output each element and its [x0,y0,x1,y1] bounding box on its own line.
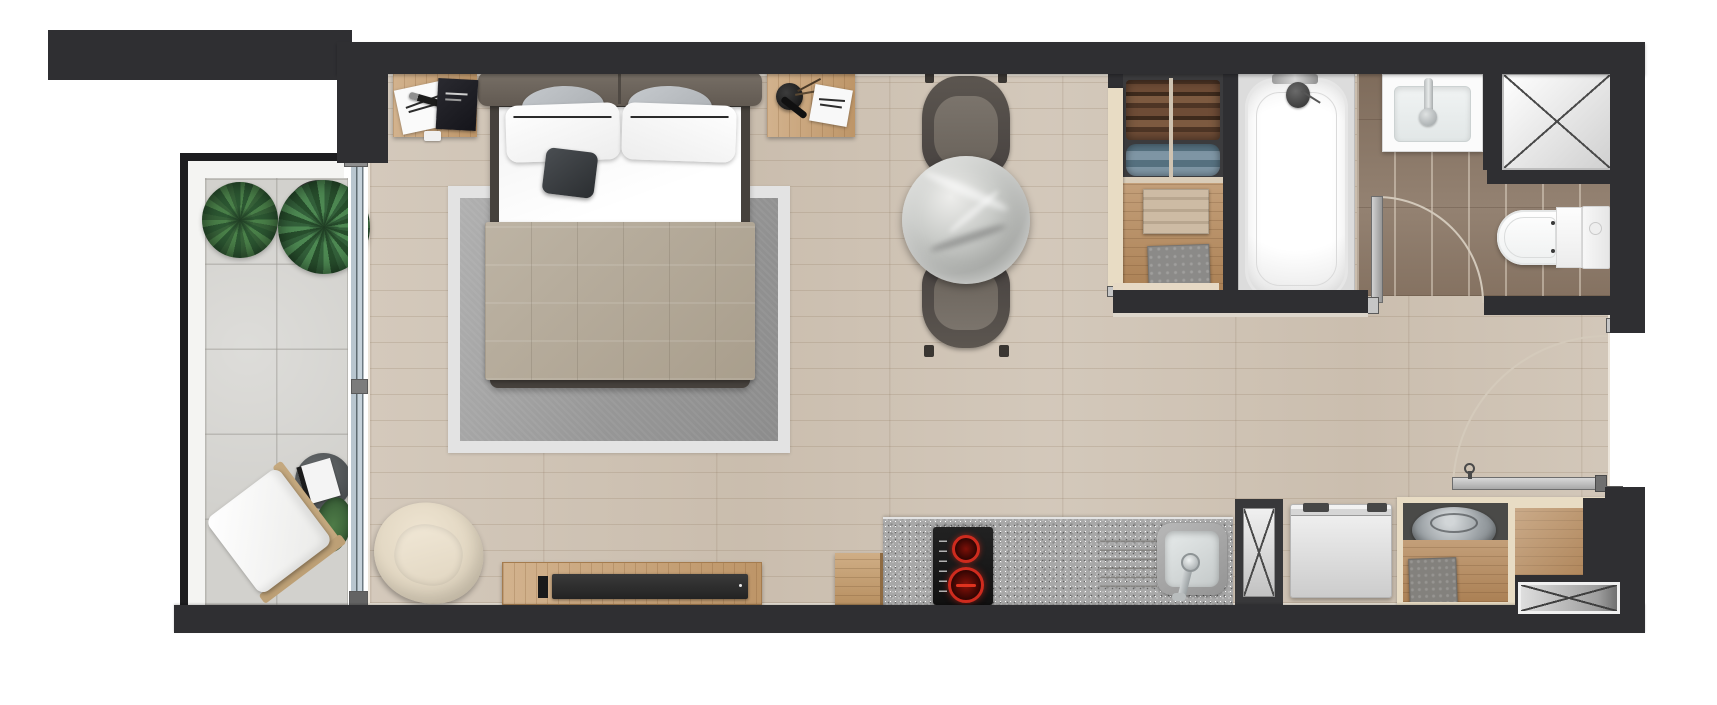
washer-hinge [1303,503,1329,512]
book-title-marks [445,98,461,100]
book-title-marks [446,92,468,95]
magazine-scribble [819,98,845,101]
toilet-flush-button [1589,222,1602,235]
hanging-clothes-blue [1126,144,1220,176]
exterior-wall-top-bump [48,30,352,80]
plant-center [226,206,254,234]
duct-shaft-x-icon [1502,73,1612,170]
drainer-grooves [1100,539,1157,587]
washing-machine [1290,504,1392,598]
headboard-split [618,74,621,104]
wall-sink-shaft-divider [1483,74,1502,170]
wood-stool [835,553,883,605]
chair-leg [924,345,934,357]
wall-toilet-south [1484,296,1645,315]
closet-partition-left [1108,88,1123,287]
dark-cushion [541,147,598,199]
duct-shaft-x-small-icon [1518,582,1620,614]
toilet-hinge-dot [1551,249,1555,253]
wall-bedroom-left-block [337,74,388,163]
burner-slit [956,584,976,587]
cabinet-left-interior [1403,503,1508,602]
balcony-frame-left [180,153,188,605]
remote [424,131,441,141]
tub-inner-line [1256,92,1337,286]
magazine [809,84,853,127]
entry-door-handle-stem [1468,471,1472,479]
white-pillow [621,102,737,163]
hob-burner [948,567,984,603]
sink-faucet-knob [1181,553,1200,572]
bathroom-door-leaf [1371,196,1383,303]
closet-right-wall [1223,74,1238,300]
washer-hinge [1367,503,1387,512]
marble-dining-table [902,156,1030,284]
hob-burner [952,535,980,563]
duct-shaft-x-icon [1243,508,1275,597]
basket-rim [1430,513,1478,533]
tv-power-led [739,584,742,587]
balcony-frame-top [180,153,344,161]
wall-south-light-edge [1113,313,1368,317]
tv-soundbar [552,574,748,599]
sink-drain-foot [1172,593,1186,601]
book [436,78,479,131]
basin-faucet-knob [1419,108,1437,126]
toilet-body [1556,207,1582,268]
pillow-piping [631,116,729,118]
magazine-scribble [820,103,842,108]
exterior-wall-top [337,42,1645,74]
bed-blanket [485,222,755,380]
folded-towel-gray [1408,557,1458,602]
pillow-piping [513,116,611,118]
closet-bottom-trim [1113,283,1219,290]
balcony-parapet-band-top [188,161,344,178]
toilet-hinge-dot [1551,221,1555,225]
hanging-clothes-brown [1126,80,1220,140]
marble-vein [929,222,1008,254]
floor-plan [0,0,1717,705]
exterior-wall-bottom [174,605,1645,633]
folded-towels-beige [1143,189,1209,234]
closet-rail [1169,78,1173,178]
wall-under-shaft [1487,170,1613,184]
plant-center [308,212,340,244]
exterior-wall-right-upper [1610,74,1645,333]
induction-hob [933,527,993,605]
chair-leg [999,345,1009,357]
toilet-tank [1582,206,1610,269]
entry-door-leaf [1452,477,1607,490]
toilet-seat-line [1504,217,1556,258]
wall-closet-tub-south [1113,290,1368,313]
glass-door-coupler [351,379,368,394]
hob-controls [939,536,947,592]
media-player [538,576,548,598]
glass-door-frame-bottom [349,591,368,606]
